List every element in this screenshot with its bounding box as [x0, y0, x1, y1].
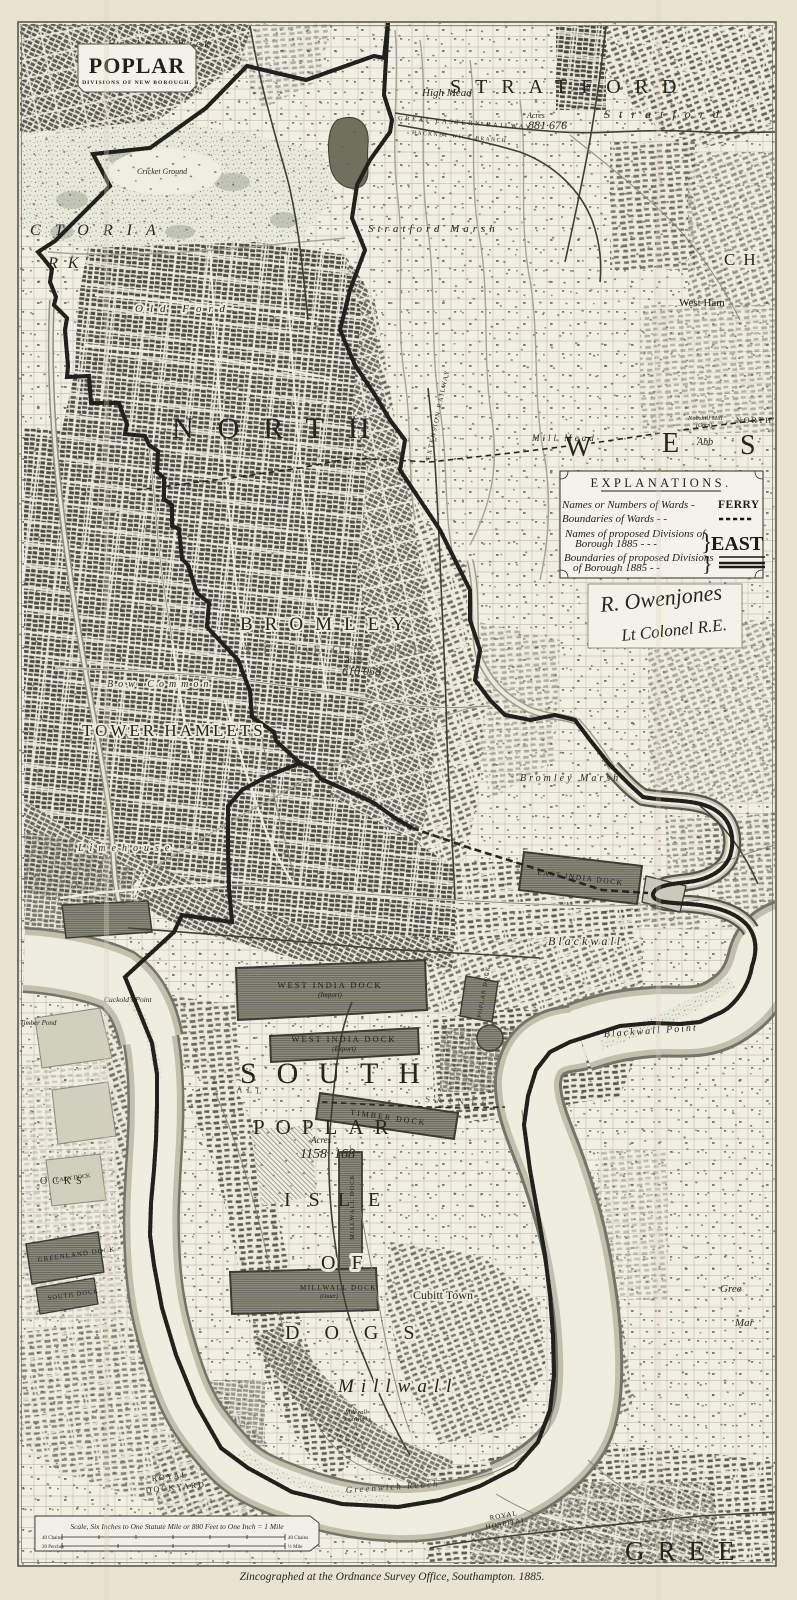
- svg-text:EAST: EAST: [711, 533, 764, 555]
- svg-text:Nobshill Mill: Nobshill Mill: [687, 415, 723, 422]
- svg-text:Scale, Six Inches to One Statu: Scale, Six Inches to One Statute Mile or…: [70, 1522, 284, 1531]
- svg-text:of Borough 1885 - -: of Borough 1885 - -: [573, 562, 660, 574]
- svg-text:Stratford Marsh: Stratford Marsh: [368, 223, 499, 235]
- svg-text:WEST INDIA DOCK: WEST INDIA DOCK: [278, 980, 383, 990]
- svg-text:Mill Mead: Mill Mead: [531, 433, 597, 443]
- svg-text:Millwall: Millwall: [344, 1409, 367, 1416]
- svg-text:Bromley Marsh: Bromley Marsh: [520, 773, 621, 784]
- svg-text:881·676: 881·676: [528, 118, 567, 132]
- svg-text:GREE: GREE: [625, 1536, 748, 1566]
- svg-text:West Ham: West Ham: [679, 297, 725, 309]
- svg-text:Acres: Acres: [310, 1135, 332, 1145]
- svg-text:Stratford: Stratford: [604, 107, 728, 121]
- svg-text:½ Mile: ½ Mile: [288, 1545, 303, 1550]
- svg-text:POPLAR: POPLAR: [89, 53, 186, 78]
- svg-text:Old Ford: Old Ford: [135, 303, 232, 315]
- svg-text:Cubitt Town: Cubitt Town: [413, 1288, 473, 1302]
- svg-text:40 Chains: 40 Chains: [42, 1536, 62, 1541]
- svg-text:ST LEONARD: ST LEONARD: [243, 642, 433, 657]
- svg-text:DIVISIONS OF NEW BOROUGH.: DIVISIONS OF NEW BOROUGH.: [82, 80, 192, 86]
- svg-text:E: E: [662, 428, 679, 459]
- svg-text:TOWER HAMLETS: TOWER HAMLETS: [82, 721, 266, 740]
- svg-text:(Export): (Export): [332, 1045, 356, 1053]
- svg-text:OCKS: OCKS: [40, 1176, 87, 1187]
- svg-text:MILLWALL DOCK: MILLWALL DOCK: [300, 1284, 377, 1292]
- svg-text:610·058: 610·058: [342, 664, 381, 678]
- svg-text:WEST INDIA DOCK: WEST INDIA DOCK: [292, 1034, 397, 1044]
- svg-text:ALL: ALL: [236, 1084, 266, 1096]
- svg-text:STRATFORD: STRATFORD: [450, 76, 690, 98]
- svg-text:Limehouse: Limehouse: [77, 843, 175, 854]
- svg-text:(Outer): (Outer): [320, 1293, 338, 1300]
- svg-text:FERRY: FERRY: [718, 499, 760, 511]
- svg-text:Cricket Ground: Cricket Ground: [137, 167, 188, 176]
- svg-text:(Corn): (Corn): [696, 422, 712, 429]
- svg-text:Boundaries of Wards -: Boundaries of Wards - -: [562, 513, 667, 525]
- svg-text:SOUTH: SOUTH: [240, 1057, 440, 1090]
- svg-text:Names or Numbers of Wards -: Names or Numbers of Wards -: [561, 499, 695, 511]
- svg-text:MILLWALL DOCK: MILLWALL DOCK: [349, 1174, 356, 1240]
- svg-text:BROMLEY: BROMLEY: [240, 614, 417, 635]
- svg-text:NORTH: NORTH: [736, 416, 773, 425]
- svg-text:CH: CH: [724, 250, 764, 269]
- svg-text:RK: RK: [47, 255, 88, 272]
- svg-text:OF: OF: [321, 1252, 379, 1274]
- svg-text:Borough 1885 - - -: Borough 1885 - - -: [575, 538, 657, 550]
- svg-text:Mar: Mar: [734, 1317, 755, 1329]
- svg-text:Bow Common: Bow Common: [107, 679, 213, 690]
- svg-text:Zincographed at the Ordnance S: Zincographed at the Ordnance Survey Offi…: [240, 1571, 545, 1583]
- svg-text:(Import): (Import): [318, 991, 342, 999]
- svg-text:High Mead: High Mead: [421, 87, 472, 99]
- svg-text:Gree: Gree: [720, 1283, 742, 1295]
- svg-text:ISLE: ISLE: [284, 1189, 398, 1211]
- svg-text:S: S: [740, 430, 756, 461]
- svg-text:40 Chains: 40 Chains: [288, 1536, 308, 1541]
- svg-text:Abb: Abb: [696, 437, 713, 448]
- svg-text:Millwall: Millwall: [337, 1376, 458, 1397]
- svg-text:20 Perches: 20 Perches: [42, 1545, 64, 1550]
- svg-text:CTORIA: CTORIA: [30, 222, 170, 239]
- svg-text:NORTH: NORTH: [172, 412, 394, 445]
- svg-text:Timber Pond: Timber Pond: [20, 1019, 57, 1027]
- svg-text:IronWorks: IronWorks: [343, 1416, 371, 1423]
- svg-text:Blackwall: Blackwall: [548, 934, 623, 948]
- svg-text:}: }: [702, 551, 713, 576]
- svg-text:Cuckold's Point: Cuckold's Point: [104, 995, 153, 1004]
- svg-text:DOGS: DOGS: [285, 1322, 439, 1344]
- svg-text:1158 ·168: 1158 ·168: [300, 1147, 355, 1162]
